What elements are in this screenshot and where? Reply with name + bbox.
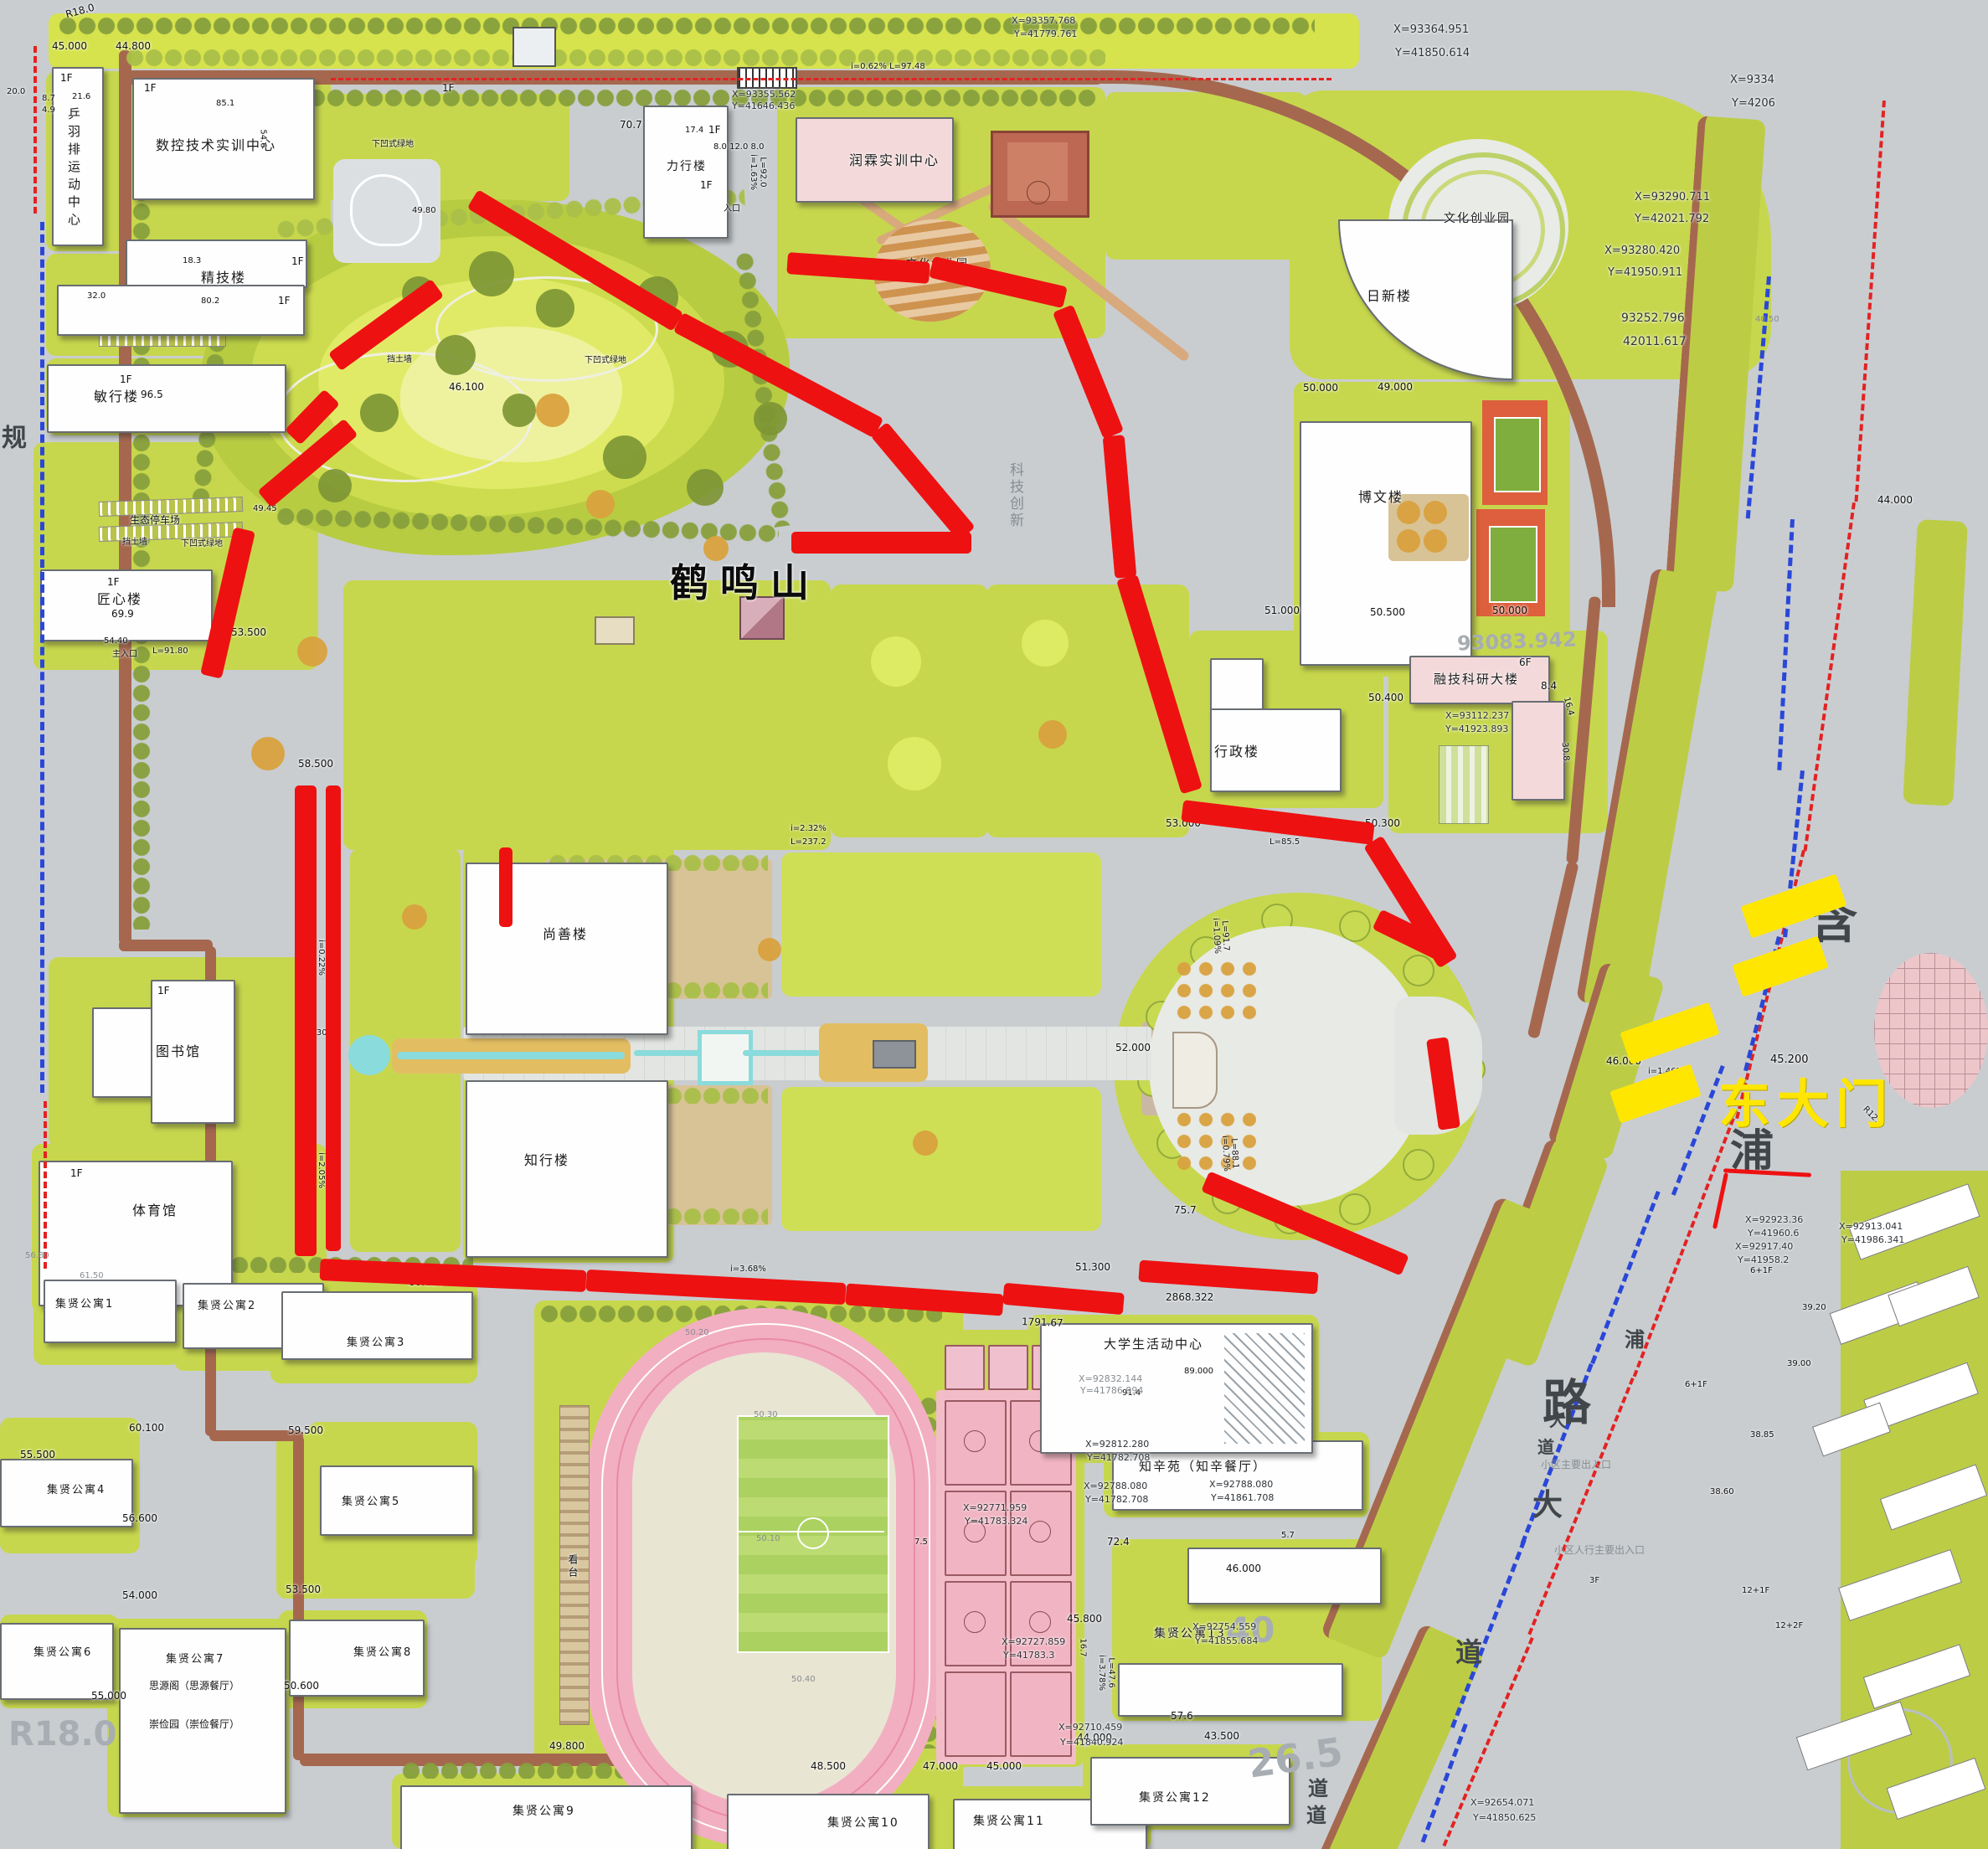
chainage-label: 93083.942 <box>1457 628 1578 656</box>
building-apt3 <box>281 1291 473 1360</box>
elevation-label: 44.800 <box>116 40 151 52</box>
dim-label: 8.0 12.0 8.0 <box>713 142 764 152</box>
road-centerline <box>331 78 1331 80</box>
tree-orange <box>536 394 569 427</box>
coordinate-label: 42011.617 <box>1623 335 1687 348</box>
green-garden <box>781 1087 1101 1231</box>
building-label: 大学生活动中心 <box>1104 1335 1203 1352</box>
route-segment <box>1002 1283 1125 1315</box>
dim-label: L=237.2 <box>791 837 827 847</box>
dim-label: i=0.22% <box>317 940 326 976</box>
building-label: 融技科研大楼 <box>1434 670 1519 688</box>
road-name-char: 道 <box>1537 1434 1554 1458</box>
coordinate-label: X=92754.559 <box>1192 1621 1256 1632</box>
elevation-label: 44.000 <box>1877 494 1913 506</box>
activity-center-hatch <box>1224 1333 1305 1444</box>
building-label: 集贤公寓3 <box>347 1333 405 1349</box>
building-label: 精技楼 <box>201 266 246 286</box>
tree-orange <box>297 636 327 667</box>
hill-structure <box>595 616 635 645</box>
dim-label: 80.2 <box>201 296 219 306</box>
tree-orange <box>1397 529 1420 553</box>
coordinate-label: Y=41850.625 <box>1473 1812 1536 1823</box>
court-circle <box>1029 1521 1051 1543</box>
road-name-char: 道 <box>1306 1799 1326 1828</box>
coordinate-label: X=93364.951 <box>1393 23 1469 36</box>
elevation-label: 61.50 <box>80 1271 104 1280</box>
water-channel <box>634 1050 699 1056</box>
building-label: 匠心楼 <box>97 588 142 608</box>
coordinate-label: 93252.796 <box>1621 312 1685 325</box>
building-label: 集贤公寓11 <box>973 1812 1045 1829</box>
tennis-court-small <box>988 1345 1028 1390</box>
elevation-label: 53.500 <box>286 1584 321 1595</box>
coordinate-label: Y=41840.924 <box>1060 1737 1123 1748</box>
route-segment <box>326 785 341 1251</box>
area-label: 挡土墙 <box>387 352 412 364</box>
building-minxing <box>47 364 286 433</box>
dim-label: L=47.6 <box>1107 1657 1116 1687</box>
dim-label: 49.80 <box>412 206 436 215</box>
building-label: 集贤公寓1 <box>55 1295 114 1311</box>
tree-orange <box>1424 501 1447 524</box>
elevation-label: 58.500 <box>298 758 333 770</box>
coordinate-label: X=93112.237 <box>1445 710 1509 721</box>
building-label: 集贤公寓9 <box>512 1802 575 1819</box>
dim-label: 96.5 <box>141 389 163 400</box>
coordinate-label: X=92913.041 <box>1839 1221 1903 1232</box>
tennis-court-small <box>945 1345 985 1390</box>
dim-label: 7.5 <box>914 1537 928 1547</box>
dim-label: 70.7 <box>620 119 642 131</box>
gate-marker-line <box>1712 1172 1728 1229</box>
floor-label: 1F <box>107 576 120 588</box>
tree-row <box>59 17 1315 37</box>
grass-parking <box>1439 745 1489 824</box>
underlay-number: R18.0 <box>8 1715 117 1754</box>
floor-label: 1F <box>700 179 713 191</box>
elevation-label: 51.000 <box>1264 605 1300 616</box>
building-apt1 <box>44 1280 177 1343</box>
coordinate-label: X=93290.711 <box>1635 191 1710 203</box>
dim-label: 57.6 <box>1171 1710 1193 1722</box>
building-label: 集贤公寓10 <box>827 1814 899 1831</box>
elevation-label: 39.00 <box>1787 1359 1811 1368</box>
dim-label: 8.7 <box>42 94 55 103</box>
coordinate-label: Y=41646.436 <box>732 100 795 111</box>
coordinate-label: Y=41850.614 <box>1395 47 1470 59</box>
elevation-label: 56.80 <box>25 1251 49 1260</box>
dim-label: 16.7 <box>1079 1638 1088 1656</box>
tree-orange <box>1038 720 1067 749</box>
building-label: 集贤公寓2 <box>198 1296 256 1312</box>
hill-name-label: 鹤鸣山 <box>670 553 821 608</box>
dim-label: 32.0 <box>87 291 106 301</box>
square-fountain <box>698 1030 753 1085</box>
tree <box>318 469 352 502</box>
floor-label: 1F <box>120 373 132 385</box>
elevation-label: 89.000 <box>1184 1367 1213 1376</box>
elevation-label: 50.500 <box>1370 606 1405 618</box>
road-centerline <box>1804 502 1856 851</box>
coordinate-label: Y=41958.2 <box>1738 1254 1789 1265</box>
coordinate-label: X=92654.071 <box>1470 1797 1534 1808</box>
entrance-label: 主入口 <box>112 646 137 659</box>
tree <box>603 435 646 479</box>
floor-label: 1F <box>144 82 157 94</box>
coordinate-label: Y=41960.6 <box>1748 1228 1799 1239</box>
floor-label: 1F <box>60 72 73 84</box>
green-garden <box>781 852 1101 997</box>
chainage-label: 2868.322 <box>1166 1291 1213 1303</box>
dim-label: i=3.68% <box>730 1264 766 1274</box>
route-segment <box>295 785 317 1256</box>
tree <box>1022 620 1069 667</box>
building-label: 博文楼 <box>1358 486 1403 506</box>
building-label: 集贤公寓8 <box>353 1643 412 1659</box>
elevation-label: 55.500 <box>20 1449 55 1460</box>
building-xingzheng-n <box>1210 658 1264 715</box>
coordinate-label: X=92812.280 <box>1085 1439 1149 1450</box>
tree <box>687 469 724 506</box>
coordinate-label: Y=41923.893 <box>1445 724 1508 734</box>
dim-label: i=2.05% <box>317 1152 326 1188</box>
building-label: 知行楼 <box>524 1149 569 1169</box>
coordinate-label: X=92727.859 <box>1002 1636 1065 1647</box>
elevation-label: 56.600 <box>122 1512 157 1524</box>
dim-label: i=2.32% <box>791 824 827 833</box>
elevation-label: 45.800 <box>1067 1613 1102 1625</box>
dim-label: i=3.78% <box>1097 1655 1106 1691</box>
coordinate-label: Y=41782.708 <box>1087 1452 1150 1463</box>
elevation-label: 38.60 <box>1710 1487 1734 1496</box>
floor-label: 1F <box>442 82 455 94</box>
dim-label: L=85.5 <box>1270 837 1300 847</box>
elevation-label: 50.30 <box>754 1410 778 1419</box>
dim-label: L=91.80 <box>152 646 188 656</box>
area-label: 下凹式绿地 <box>585 353 626 365</box>
coordinate-label: Y=41986.341 <box>1841 1234 1904 1245</box>
building-label: 集贤公寓5 <box>342 1492 400 1508</box>
north-entrance-structure <box>512 27 556 67</box>
building-label: 知辛苑（知辛餐厅） <box>1139 1457 1267 1475</box>
entrance-label: 小区人行主要出入口 <box>1554 1543 1645 1557</box>
elevation-label: 59.500 <box>288 1424 323 1436</box>
tree <box>536 289 574 327</box>
dim-label: 75.7 <box>1174 1204 1197 1216</box>
tree-orange <box>1424 529 1447 553</box>
area-label: 下凹式绿地 <box>181 536 223 549</box>
building-label: 集贤公寓7 <box>166 1650 224 1666</box>
road-name-char: 大 <box>1549 1407 1566 1431</box>
route-segment <box>499 847 512 927</box>
coordinate-label: X=92788.080 <box>1084 1481 1147 1491</box>
coordinate-label: X=93357.768 <box>1012 15 1075 26</box>
floor-label: 1F <box>291 255 304 267</box>
coordinate-label: X=92917.40 <box>1735 1241 1793 1252</box>
ring-road <box>293 1435 304 1760</box>
elevation-label: 39.20 <box>1802 1303 1826 1312</box>
building-label: 行政楼 <box>1214 740 1259 760</box>
elevation-label: 50.000 <box>1492 605 1527 616</box>
building-library-w <box>92 1007 156 1098</box>
building-apt13-b <box>1118 1663 1343 1717</box>
tree-orange <box>402 904 427 930</box>
coordinate-label: Y=41782.708 <box>1085 1494 1148 1505</box>
dim-label: L=91.7 <box>1220 920 1231 951</box>
building-rongji-b <box>1512 701 1565 801</box>
coordinate-label: X=93280.420 <box>1604 245 1680 257</box>
stage-inner <box>1172 1032 1218 1109</box>
building-label: 敏行楼 <box>94 385 139 405</box>
tree <box>754 402 787 435</box>
area-label: 生态停车场 <box>130 512 180 527</box>
coordinate-label: Y=41950.911 <box>1608 266 1682 279</box>
basketball-court <box>945 1671 1007 1757</box>
dim-label: 72.4 <box>1107 1536 1130 1548</box>
elevation-label: 50.10 <box>756 1534 780 1543</box>
dim-label: i=1.63% <box>749 154 758 190</box>
floor-label: 6F <box>1519 657 1532 668</box>
elevation-label: 51.300 <box>1075 1261 1110 1273</box>
floor-label: 3F <box>1589 1576 1599 1585</box>
grandstand-label: 看台 <box>566 1554 580 1579</box>
tree <box>1403 1149 1434 1181</box>
floor-label: 1F <box>157 985 170 997</box>
building-label: 日新楼 <box>1367 285 1412 305</box>
coordinate-label: Y=41783.324 <box>965 1516 1027 1527</box>
entrance-label: 入口 <box>724 201 740 214</box>
elevation-label: 45.000 <box>986 1760 1022 1772</box>
court-circle <box>1027 181 1050 204</box>
boundary-dash-west <box>33 46 37 214</box>
elevation-label: 49.800 <box>549 1740 585 1752</box>
coordinate-label: X=93355.562 <box>732 89 796 100</box>
water-channel <box>743 1050 820 1056</box>
boundary-dash-west <box>44 1101 47 1269</box>
building-label: 思源阁（思源餐厅） <box>149 1678 239 1692</box>
coordinate-label: Y=4206 <box>1732 97 1775 110</box>
chainage-label: 1791.67 <box>1022 1316 1064 1329</box>
building-shangshan <box>466 863 668 1035</box>
floor-label: 12+1F <box>1742 1586 1769 1595</box>
monument <box>873 1040 916 1069</box>
court-circle <box>964 1430 986 1452</box>
building-zhixing <box>466 1080 668 1258</box>
elevation-label: 50.20 <box>685 1328 709 1337</box>
route-segment <box>791 532 971 554</box>
elevation-label: 50.400 <box>1368 692 1403 703</box>
east-gate-label: 东大门 <box>1718 1062 1894 1137</box>
tree-orange <box>913 1131 938 1156</box>
tree <box>469 251 514 296</box>
building-apt6 <box>0 1623 114 1700</box>
tennis-court <box>1494 417 1541 492</box>
coordinate-label: Y=41783.3 <box>1003 1650 1054 1661</box>
green-block <box>831 585 988 837</box>
area-label: 科技创新 <box>1005 462 1026 529</box>
elevation-label: 40.50 <box>1755 315 1779 324</box>
floor-label: 6+1F <box>1685 1380 1707 1389</box>
court-circle <box>1029 1611 1051 1633</box>
boundary-dash-west <box>40 222 44 1093</box>
coordinate-label: Y=41855.684 <box>1195 1635 1258 1646</box>
dim-label: 8.4 <box>1541 680 1557 692</box>
coordinate-label: X=92710.459 <box>1058 1722 1122 1733</box>
building-label: 图书馆 <box>156 1040 201 1060</box>
area-label: 下凹式绿地 <box>372 136 414 149</box>
road-centerline <box>1633 1118 1735 1378</box>
dim-label: 69.9 <box>111 608 134 620</box>
elevation-label: 60.100 <box>129 1422 164 1434</box>
elevation-label: 54.000 <box>122 1589 157 1601</box>
elevation-label: 48.500 <box>811 1760 846 1772</box>
dim-label: L=88.1 <box>1229 1138 1240 1169</box>
residential-green-east <box>1903 519 1968 806</box>
building-label: 体育馆 <box>132 1199 178 1219</box>
coordinate-label: Y=41786.994 <box>1080 1385 1143 1396</box>
coordinate-label: X=92832.144 <box>1079 1373 1142 1384</box>
tree <box>435 335 476 375</box>
ring-road <box>119 940 213 951</box>
dim-label: 54.40 <box>104 636 128 646</box>
coordinate-label: Y=41861.708 <box>1211 1492 1274 1503</box>
dim-label: 20.0 <box>7 87 25 96</box>
dim-label: 54.6 <box>259 129 268 147</box>
elevation-label: 46.100 <box>449 381 484 393</box>
road-centerline <box>1855 100 1886 502</box>
road-name-char: 浦 <box>1625 1323 1645 1352</box>
court-circle <box>964 1611 986 1633</box>
route-segment <box>586 1270 847 1305</box>
tree-row-orange <box>1177 961 1256 1022</box>
road-name-char: 道 <box>1455 1631 1482 1670</box>
road-name-char: 大 <box>1532 1481 1563 1524</box>
elevation-label: 49.000 <box>1378 381 1413 393</box>
dim-label: L=92.0 <box>759 157 768 187</box>
ring-road-west <box>119 50 131 945</box>
elevation-label: 52.000 <box>1115 1042 1151 1053</box>
coordinate-label: X=92788.080 <box>1209 1479 1273 1490</box>
tree-orange <box>586 490 615 518</box>
building-label: 集贤公寓12 <box>1139 1789 1211 1805</box>
route-segment <box>1138 1260 1318 1295</box>
elevation-label: 55.000 <box>91 1690 126 1702</box>
tree-row <box>126 49 1105 67</box>
dim-label: 30.8 <box>1560 742 1571 761</box>
building-label: 力行楼 <box>667 157 707 174</box>
building-label: 集贤公寓4 <box>47 1481 106 1496</box>
green-line-boundary <box>1777 519 1795 770</box>
road-name-char: 规 <box>2 417 27 454</box>
dim-label: 5.7 <box>1281 1531 1295 1540</box>
area-label: 挡土墙 <box>122 534 147 547</box>
field-center-circle <box>797 1517 829 1549</box>
building-apt13-a <box>1187 1548 1382 1604</box>
building-label: 乒羽排运动中心 <box>65 107 83 230</box>
elevation-label: 47.000 <box>923 1760 958 1772</box>
tennis-court <box>1489 526 1537 603</box>
floor-label: 1F <box>708 124 721 136</box>
underlay-number: 26.5 <box>1245 1728 1346 1786</box>
dim-label: i=0.62% L=97.48 <box>851 62 925 71</box>
floor-label: 1F <box>70 1167 83 1179</box>
building-label: 尚善楼 <box>543 923 588 943</box>
tree <box>888 737 941 791</box>
round-pool <box>348 1035 390 1075</box>
elevation-label: 38.85 <box>1750 1430 1774 1440</box>
coordinate-label: Y=41779.761 <box>1014 28 1077 39</box>
tree <box>502 394 536 427</box>
campus-master-plan-map: R18.0 45.000 44.800 20.0 8.7 4.9 1F 21.6… <box>0 0 1988 1849</box>
coordinate-label: X=92771.959 <box>963 1502 1027 1513</box>
tree <box>1403 955 1434 986</box>
tree-row-orange <box>1177 1112 1256 1172</box>
coordinate-label: X=9334 <box>1730 74 1774 86</box>
tree-orange <box>251 737 285 770</box>
ring-road-east <box>1527 861 1579 1039</box>
area-label: 文化创业园 <box>1444 209 1511 226</box>
elevation-label: 50.40 <box>791 1675 816 1684</box>
tree-orange <box>758 938 781 961</box>
tree <box>871 636 921 687</box>
elevation-label: 45.000 <box>52 40 87 52</box>
tree <box>360 394 399 432</box>
dim-label: 4.9 <box>42 106 55 115</box>
coordinate-label: X=92923.36 <box>1745 1214 1803 1225</box>
entrance-label: 小区主要出入口 <box>1541 1457 1611 1471</box>
route-segment <box>870 422 975 541</box>
elevation-label: 46.000 <box>1226 1563 1261 1574</box>
building-label: 润霖实训中心 <box>849 149 940 169</box>
floor-label: 12+2F <box>1775 1621 1803 1630</box>
elevation-label: 50.000 <box>1303 382 1338 394</box>
dim-label: 21.6 <box>72 92 90 101</box>
elevation-label: 50.600 <box>284 1680 319 1692</box>
coordinate-label: Y=42021.792 <box>1635 213 1709 225</box>
dim-label: 17.4 <box>685 126 703 135</box>
dim-label: 85.1 <box>216 99 234 108</box>
dim-label: 18.3 <box>183 256 201 265</box>
elevation-label: 43.500 <box>1204 1730 1239 1742</box>
building-label: 集贤公寓6 <box>33 1643 92 1659</box>
floor-label: 1F <box>278 295 291 306</box>
elevation-label: 53.500 <box>231 626 266 638</box>
tree <box>1339 1193 1371 1225</box>
stream <box>397 1052 625 1059</box>
building-label: 崇俭园（崇俭餐厅） <box>149 1717 239 1731</box>
floor-label: 6+1F <box>1750 1266 1773 1275</box>
